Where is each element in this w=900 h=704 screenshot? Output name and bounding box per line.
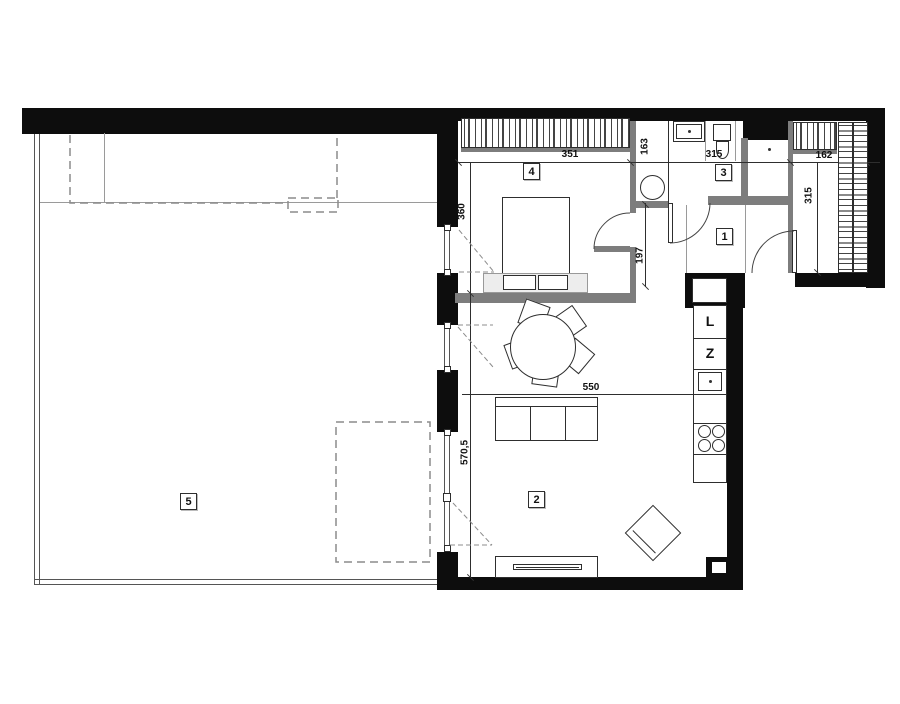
bottom-wall-notch <box>712 562 726 573</box>
kitchen-top-cabinet <box>692 278 727 303</box>
sofa-seat-divider <box>530 407 531 440</box>
bathroom-hall-wall <box>708 196 791 205</box>
duct-shaft <box>743 121 791 140</box>
dim-line-550 <box>462 394 693 395</box>
terrace-floor-line <box>40 202 437 203</box>
dining-table <box>510 314 576 380</box>
bedroom-wardrobe <box>461 118 630 148</box>
window-b <box>444 325 450 370</box>
overhang-outline-lower <box>336 422 430 562</box>
bedroom-door-arc <box>594 213 630 249</box>
room-label-terrace: 5 <box>180 493 197 510</box>
hall-wardrobe-side-a <box>838 122 853 273</box>
bed-pillow <box>538 275 568 290</box>
plan-overlay <box>0 0 900 704</box>
window-hardware <box>444 322 451 329</box>
window-a <box>444 227 450 273</box>
overhang-outline-left <box>70 135 288 203</box>
window-hardware <box>444 366 451 373</box>
window-mullion <box>443 493 451 502</box>
hall-floor-line-right <box>745 205 746 273</box>
dim-line-nook <box>668 121 669 208</box>
bed-mattress <box>502 197 570 274</box>
entrance-door-leaf <box>792 230 797 273</box>
dim-closet-depth: 315 <box>803 181 816 211</box>
kitchen-unit-divider <box>694 454 726 455</box>
dim-closet-width: 162 <box>806 150 842 161</box>
dim-line-west <box>470 163 471 578</box>
shower-drain <box>768 148 771 151</box>
bedroom-living-wall <box>455 293 636 303</box>
cooktop-burner <box>698 425 711 438</box>
cooktop-burner <box>712 439 725 452</box>
terrace-edge-line <box>104 133 105 203</box>
kitchen-unit-divider <box>694 369 726 370</box>
bathroom-door-arc <box>670 203 710 243</box>
terrace-railing-bottom <box>34 579 443 585</box>
sofa-back-line <box>496 406 597 407</box>
west-wall-pier-c <box>437 370 458 432</box>
hall-wardrobe-side-b <box>853 122 868 273</box>
washing-machine <box>640 175 665 200</box>
washbasin-drain <box>688 130 691 133</box>
hall-floor-line-left <box>686 205 687 273</box>
dim-nook-height: 163 <box>639 132 652 162</box>
floor-plan: L Z 1 2 3 4 5 351 315 162 550 360 570,5 … <box>0 0 900 704</box>
sofa-seat-divider <box>565 407 566 440</box>
bottom-exterior-wall <box>437 577 743 590</box>
fridge-label: L <box>693 305 727 337</box>
window-hardware <box>444 429 451 436</box>
bedroom-door-leaf <box>594 246 630 252</box>
kitchen-sink-drain <box>709 380 712 383</box>
room-label-bedroom: 4 <box>523 163 540 180</box>
dim-bathroom-width: 315 <box>696 149 732 160</box>
dim-hall-depth: 197 <box>634 241 647 271</box>
dim-living-depth: 570,5 <box>459 431 472 475</box>
room-label-living: 2 <box>528 491 545 508</box>
bedroom-wardrobe-base <box>461 148 630 152</box>
window-b-swing-line <box>458 325 493 367</box>
tv-screen-line <box>516 567 579 568</box>
window-a-swing-line <box>459 230 494 272</box>
right-exterior-wall <box>866 108 885 288</box>
bed-pillow <box>503 275 536 290</box>
armchair-back-line <box>632 530 655 553</box>
dim-bedroom-width: 351 <box>552 149 588 160</box>
cooktop-burner <box>712 425 725 438</box>
bathroom-niche-line <box>735 121 736 161</box>
kitchen-unit-divider <box>694 394 726 395</box>
dim-bedroom-depth: 360 <box>456 197 469 227</box>
sofa <box>495 397 598 441</box>
window-hardware <box>444 545 451 552</box>
window-c <box>444 432 450 552</box>
hall-wardrobe-top <box>793 122 837 150</box>
entry-wall-right <box>795 273 867 287</box>
toilet-cistern <box>713 124 731 141</box>
tv <box>513 564 582 570</box>
armchair <box>625 505 682 562</box>
window-hardware <box>444 224 451 231</box>
bathroom-door-leaf <box>668 203 673 243</box>
kitchen-unit-divider <box>694 423 726 424</box>
cooktop-burner <box>698 439 711 452</box>
overhang-column <box>288 198 338 212</box>
room-label-bathroom: 3 <box>715 164 732 181</box>
dim-line-closet <box>817 163 818 273</box>
dishwasher-label: Z <box>693 337 727 368</box>
window-hardware <box>444 269 451 276</box>
dim-living-width: 550 <box>573 382 609 393</box>
room-label-hall: 1 <box>716 228 733 245</box>
bedroom-hall-wall-upper <box>630 121 636 213</box>
terrace-top-wall <box>22 108 443 134</box>
shower-wall <box>741 138 748 198</box>
window-c-swing-line <box>450 503 492 545</box>
east-wall <box>727 273 743 580</box>
